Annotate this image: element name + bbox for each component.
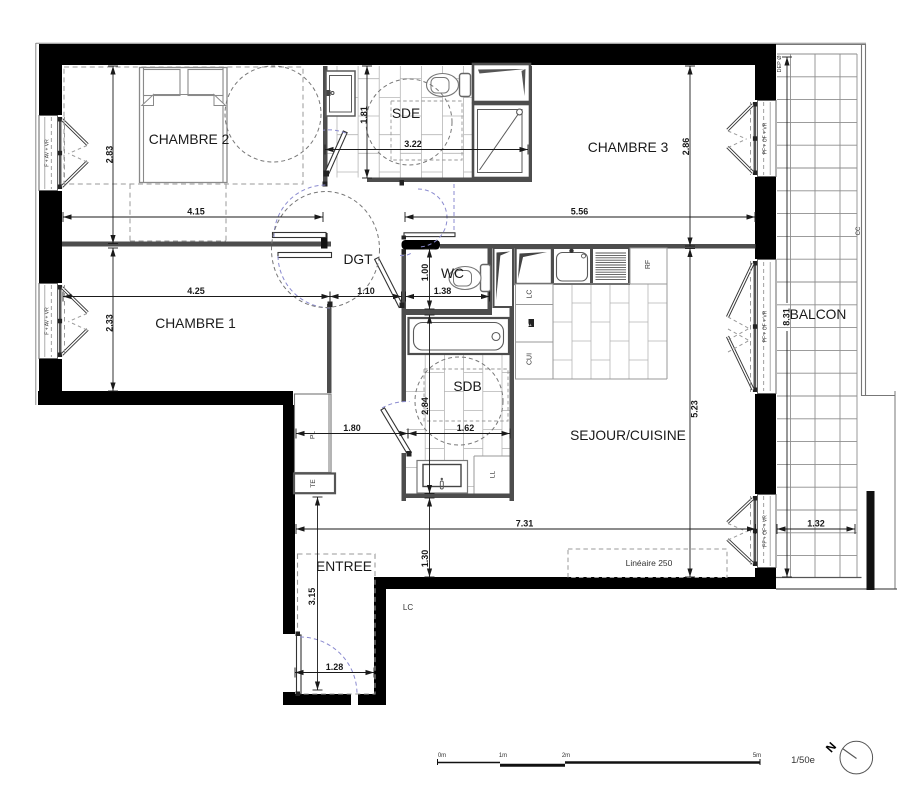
- svg-text:2.84: 2.84: [420, 397, 430, 415]
- svg-text:1.10: 1.10: [357, 286, 375, 296]
- svg-text:7.31: 7.31: [516, 519, 534, 529]
- svg-text:1.81: 1.81: [359, 106, 369, 124]
- svg-text:2m: 2m: [562, 753, 570, 759]
- svg-text:SEJOUR/CUISINE: SEJOUR/CUISINE: [570, 428, 686, 443]
- svg-text:5.56: 5.56: [571, 207, 589, 217]
- svg-text:PF + OF + VR: PF + OF + VR: [763, 515, 769, 547]
- svg-text:SDE: SDE: [392, 106, 420, 121]
- svg-text:0m: 0m: [438, 753, 446, 759]
- svg-text:LL: LL: [490, 471, 497, 479]
- svg-text:Linéaire 250: Linéaire 250: [626, 558, 673, 568]
- svg-text:2.33: 2.33: [105, 314, 115, 332]
- svg-text:LC: LC: [403, 603, 413, 612]
- svg-text:1.28: 1.28: [326, 662, 344, 672]
- svg-text:4.15: 4.15: [187, 207, 205, 217]
- svg-text:CHAMBRE 2: CHAMBRE 2: [149, 132, 230, 147]
- svg-text:1.30: 1.30: [420, 550, 430, 568]
- svg-text:5m: 5m: [753, 753, 761, 759]
- svg-text:1/50e: 1/50e: [791, 755, 815, 766]
- svg-text:2.86: 2.86: [681, 138, 691, 156]
- svg-text:2.83: 2.83: [105, 146, 115, 164]
- svg-text:1.62: 1.62: [457, 423, 475, 433]
- svg-text:3.15: 3.15: [307, 588, 317, 606]
- svg-text:3.22: 3.22: [404, 139, 422, 149]
- svg-text:4.25: 4.25: [187, 286, 205, 296]
- svg-text:LC: LC: [527, 290, 534, 299]
- svg-text:1m: 1m: [499, 753, 507, 759]
- svg-text:F + AV + VR: F + AV + VR: [45, 307, 51, 335]
- svg-text:1.32: 1.32: [807, 519, 825, 529]
- svg-text:1.38: 1.38: [434, 286, 452, 296]
- svg-text:ENTREE: ENTREE: [316, 559, 372, 574]
- svg-text:PL: PL: [310, 431, 317, 439]
- svg-text:8.31: 8.31: [782, 308, 792, 326]
- svg-text:CC: CC: [856, 226, 862, 235]
- svg-text:F: F: [528, 323, 533, 326]
- svg-text:CHAMBRE 3: CHAMBRE 3: [588, 140, 669, 155]
- svg-text:PF + OF + VR: PF + OF + VR: [763, 310, 769, 342]
- svg-text:SDB: SDB: [453, 379, 481, 394]
- svg-text:TE: TE: [310, 479, 317, 488]
- svg-text:CUI: CUI: [527, 353, 534, 365]
- svg-text:CHAMBRE 1: CHAMBRE 1: [155, 316, 236, 331]
- svg-text:F + AV + VR: F + AV + VR: [45, 139, 51, 167]
- svg-text:PF + OF + VR: PF + OF + VR: [763, 122, 769, 154]
- svg-text:5.23: 5.23: [690, 400, 700, 418]
- svg-text:1.00: 1.00: [420, 264, 430, 282]
- svg-text:N: N: [823, 739, 839, 755]
- svg-text:WC: WC: [441, 266, 464, 281]
- svg-text:1.80: 1.80: [343, 423, 361, 433]
- svg-text:BALCON: BALCON: [790, 307, 847, 322]
- svg-text:RF: RF: [645, 260, 652, 269]
- svg-text:DGT: DGT: [343, 252, 373, 267]
